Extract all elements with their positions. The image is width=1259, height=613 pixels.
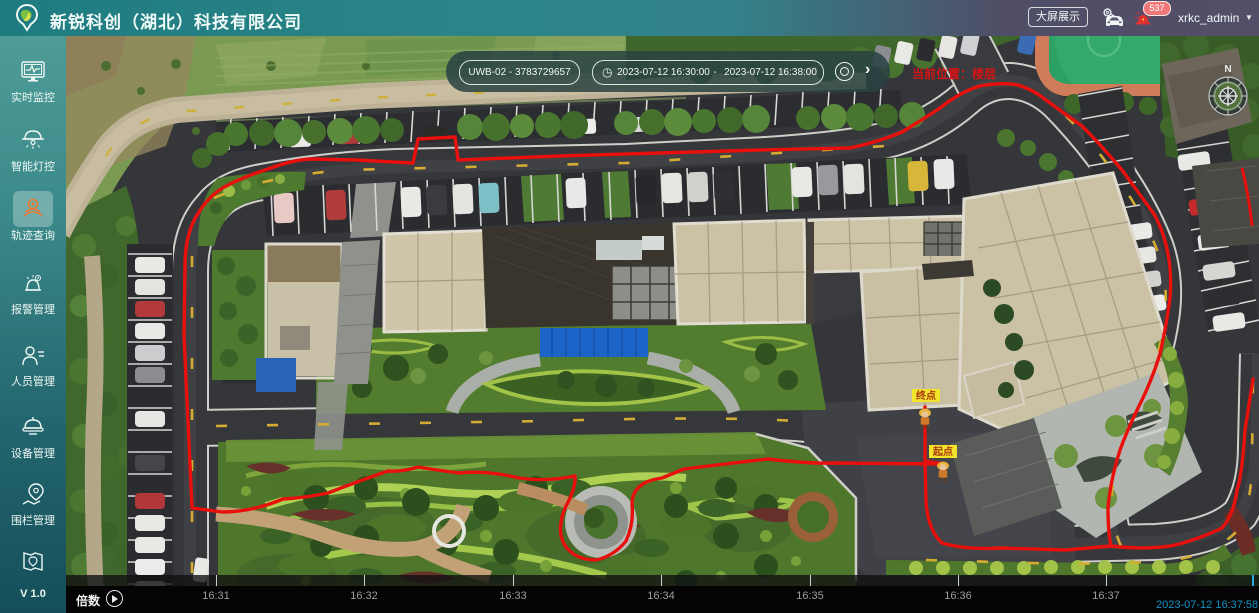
svg-text:起点: 起点 xyxy=(932,445,953,458)
svg-text:N: N xyxy=(1224,64,1231,75)
svg-text:当前位置：楼层: 当前位置：楼层 xyxy=(912,66,996,81)
svg-text:终点: 终点 xyxy=(916,389,936,402)
